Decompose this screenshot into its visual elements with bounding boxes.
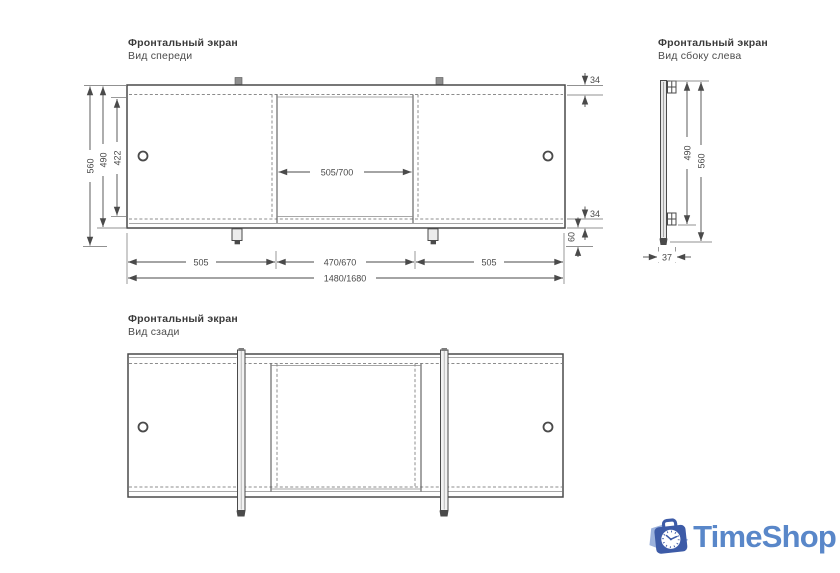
dim-total-width: 1480/1680 — [324, 274, 367, 284]
back-panel-outline — [128, 354, 563, 497]
dim-leg-height: 60 — [567, 232, 577, 242]
hanger-clip — [436, 78, 443, 85]
hanger-clip — [235, 78, 242, 85]
finger-hole — [139, 152, 148, 161]
dim-total-height: 560 — [86, 158, 96, 173]
dim-side-total-height: 560 — [697, 153, 707, 168]
finger-hole — [544, 423, 553, 432]
dim-opening-height: 422 — [113, 150, 123, 165]
adjustable-foot — [232, 229, 242, 245]
dim-bottom-rail: 34 — [590, 209, 600, 219]
support-post — [440, 348, 449, 517]
support-post — [237, 348, 246, 517]
side-view: 490 560 37 — [643, 81, 712, 264]
side-foot — [660, 239, 668, 246]
finger-hole — [544, 152, 553, 161]
technical-drawing: 560 490 422 505/700 34 34 60 — [0, 0, 840, 573]
dim-side-panel-height: 490 — [683, 145, 693, 160]
dim-section-center: 470/670 — [324, 258, 357, 268]
front-view: 560 490 422 505/700 34 34 60 — [83, 73, 603, 284]
logo-text: TimeShop — [693, 519, 836, 555]
rail-section — [668, 213, 677, 225]
dim-section-left: 505 — [193, 258, 208, 268]
dim-middle-panel: 505/700 — [321, 168, 354, 178]
product-drawing-page: Фронтальный экран Вид спереди Фронтальны… — [0, 0, 840, 573]
adjustable-foot — [428, 229, 438, 245]
timeshop-logo-icon — [646, 505, 691, 569]
logo: TimeShop — [646, 504, 836, 570]
back-view — [128, 348, 563, 517]
rail-section — [668, 81, 677, 93]
dim-section-right: 505 — [481, 258, 496, 268]
dim-panel-height: 490 — [99, 152, 109, 167]
dim-top-rail: 34 — [590, 75, 600, 85]
finger-hole — [139, 423, 148, 432]
front-panel-outline — [127, 85, 565, 228]
dim-side-depth: 37 — [662, 253, 672, 263]
